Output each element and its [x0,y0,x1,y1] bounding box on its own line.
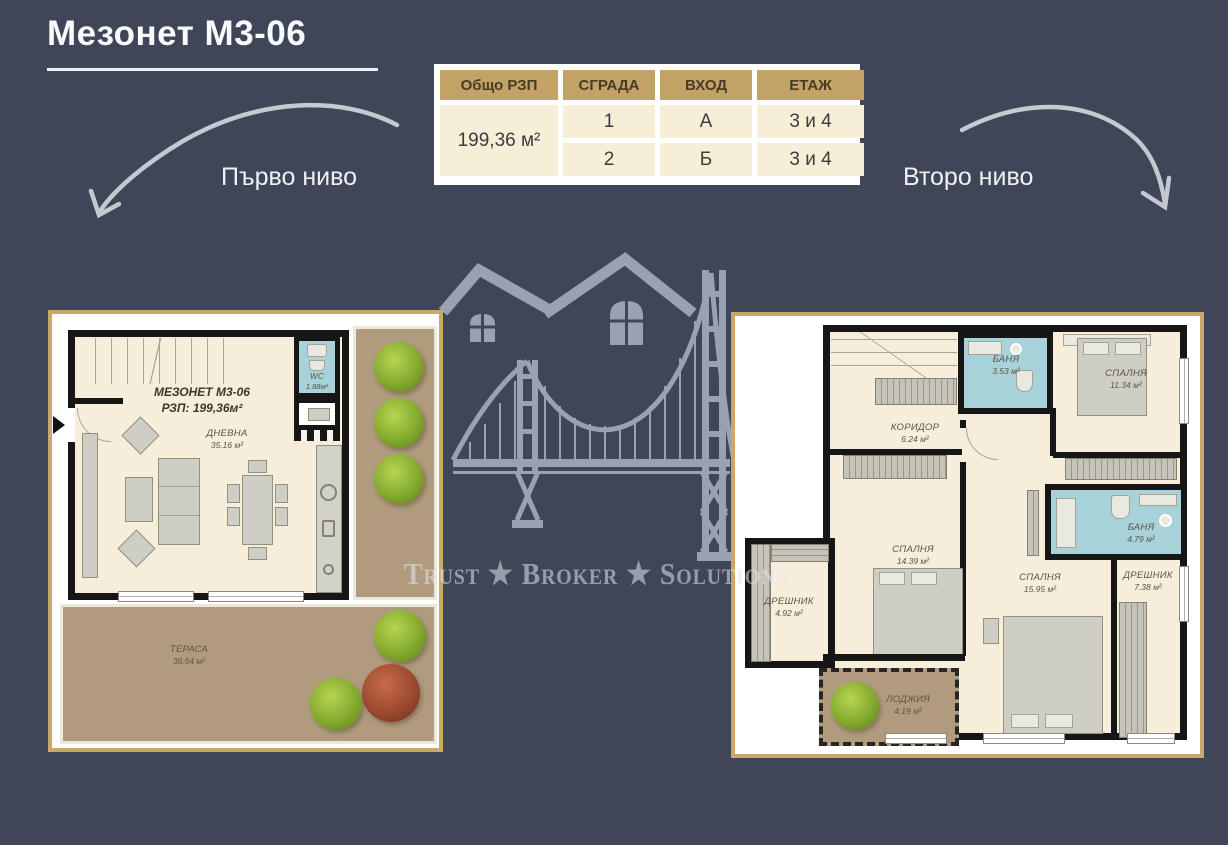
sofa [158,458,200,545]
entrance-cell: Б [660,143,752,176]
page-title: Мезонет М3-06 [47,14,306,54]
bathroom-2 [1045,484,1187,560]
wardrobe [1027,490,1039,556]
sink [1010,343,1022,355]
unit-title-label: МЕЗОНЕТ М3-06 РЗП: 199,36м² [112,384,292,416]
door-opening [960,428,966,462]
bridge-suspenders [470,321,695,459]
kitchen-sink [322,520,335,537]
pillow [1011,714,1039,728]
room-label-wc: WC 1.88м² [299,372,335,392]
col-header-entrance: ВХОД [660,70,752,100]
cooktop [320,484,337,501]
vanity [1139,494,1177,506]
kitchen-counter [316,445,342,593]
toilet [1016,370,1033,392]
chair [248,460,267,473]
closet-shelves [751,544,771,662]
pillow [1083,342,1109,355]
bathroom-1 [958,332,1053,414]
chair [248,547,267,560]
pillow [879,572,905,585]
unit-name: МЕЗОНЕТ М3-06 [112,384,292,400]
col-header-building: СГРАДА [563,70,655,100]
low-wall [294,430,340,441]
window [208,591,304,602]
bridge-cables [453,273,734,460]
bush [374,342,424,392]
window [118,591,194,602]
pillow [911,572,937,585]
window [1179,566,1189,622]
title-underline [47,68,378,71]
wall [1050,408,1056,456]
window [1179,358,1189,424]
bridge-braces [517,472,726,552]
bush [374,454,424,504]
vanity [968,341,1002,355]
col-header-floor: ЕТАЖ [757,70,864,100]
sink [1159,514,1172,527]
bush [374,610,426,662]
first-level-caption: Първо ниво [221,163,357,192]
utility-niche [294,398,340,430]
wardrobe [843,455,947,479]
closet-shelves [1119,602,1147,738]
floor-cell: 3 и 4 [757,143,864,176]
building-cell: 2 [563,143,655,176]
col-header-total: Общо РЗП [440,70,558,100]
shower [1056,498,1076,548]
chair [227,507,240,526]
unit-rzp: РЗП: 199,36м² [112,400,292,416]
nightstand [983,618,999,644]
stairs [831,332,957,378]
bush-red [362,664,420,722]
first-level-floorplan: МЕЗОНЕТ М3-06 РЗП: 199,36м² ДНЕВНА 35.16… [48,310,443,752]
dining-table [242,475,273,545]
window [983,733,1065,744]
stairs [80,338,232,384]
second-level-caption: Второ ниво [903,163,1033,192]
tv-cabinet [82,433,98,578]
chair [227,484,240,503]
window [885,733,947,744]
wardrobe [1065,458,1177,480]
toilet [309,360,325,371]
building-cell: 1 [563,105,655,138]
washing-machine [308,408,330,421]
wall [823,654,965,661]
sink [307,344,327,357]
trust-broker-solutions-logo [435,246,735,576]
window [1127,733,1175,744]
wc-room: WC 1.88м² [294,336,340,398]
entrance-cell: А [660,105,752,138]
floor-cell: 3 и 4 [757,105,864,138]
appliance [323,564,334,575]
bush [374,398,424,448]
toilet [1111,495,1130,519]
bush [831,682,879,730]
arrow-to-first-level [91,105,397,215]
chaise [125,477,153,522]
pillow [1115,342,1141,355]
wardrobe [875,378,957,405]
wall [1111,560,1117,740]
unit-info-table: Общо РЗП СГРАДА ВХОД ЕТАЖ 199,36 м² 1 А … [434,64,860,185]
chair [275,484,288,503]
pillow [1045,714,1073,728]
bush [310,678,362,730]
closet-shelves [771,544,829,562]
house-roofs-icon [443,259,693,314]
entry-arrow-marker [53,416,65,434]
chair [275,507,288,526]
brochure-page: Мезонет М3-06 Общо РЗП СГРАДА ВХОД ЕТАЖ … [0,0,1228,845]
second-level-floorplan: КОРИДОР 6.24 м² БАНЯ 3.53 м² СПАЛНЯ 11.3… [731,312,1204,758]
total-area-cell: 199,36 м² [440,105,558,176]
